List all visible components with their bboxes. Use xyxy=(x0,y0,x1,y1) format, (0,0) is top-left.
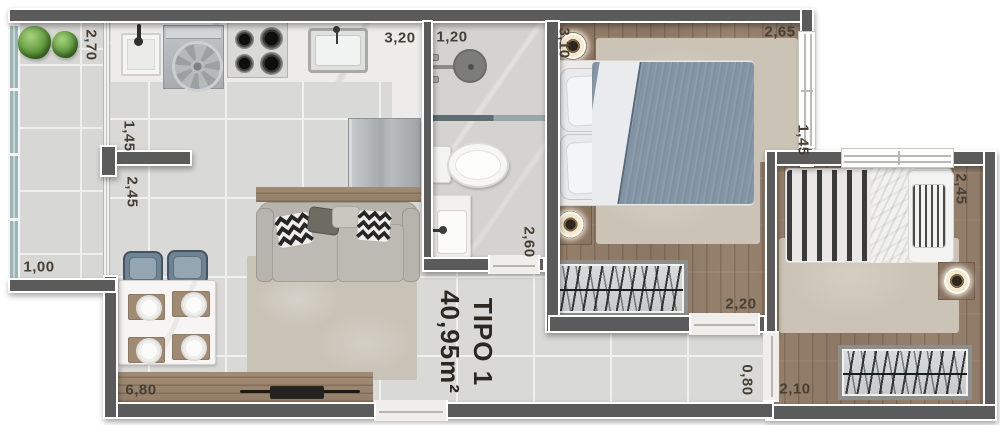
dim-hall-door: 0,80 xyxy=(740,364,755,395)
dim-balcony-width: 1,00 xyxy=(23,260,54,275)
entry-door-opening xyxy=(374,400,448,421)
dim-kitchen-length: 3,20 xyxy=(384,31,415,46)
floor-plan: 2,70 1,45 2,45 1,00 6,80 3,20 1,20 2,60 … xyxy=(0,0,1000,425)
dim-bath-length: 2,60 xyxy=(522,226,537,257)
bedroom2-door-opening xyxy=(763,331,779,402)
dim-partition-upper: 1,45 xyxy=(122,120,137,151)
wall-segment xyxy=(115,150,192,166)
dim-bedroom1-window: 1,45 xyxy=(796,124,811,155)
plan-title: TIPO 1 40,95m² xyxy=(433,290,499,394)
bedroom1-door-opening xyxy=(689,313,760,335)
dim-bedroom2-length: 2,45 xyxy=(954,173,969,204)
wall-segment xyxy=(545,20,560,333)
dim-living-length: 6,80 xyxy=(125,383,156,398)
dim-wardrobe2: 2,10 xyxy=(779,382,810,397)
window-mullion xyxy=(898,151,900,165)
wall-segment xyxy=(422,20,433,272)
door-leaf xyxy=(493,265,535,267)
door-leaf xyxy=(694,324,755,326)
door-leaf xyxy=(379,411,443,413)
wall-segment xyxy=(8,8,814,23)
bathroom-door-opening xyxy=(488,255,540,274)
plan-title-line1: TIPO 1 xyxy=(466,290,499,394)
dim-balcony-length: 2,70 xyxy=(84,29,99,60)
window-mullion xyxy=(801,90,813,92)
dim-partition-lower: 2,45 xyxy=(125,176,140,207)
wall-segment xyxy=(983,150,997,421)
dim-bedroom1-length: 3,10 xyxy=(557,27,572,58)
door-leaf xyxy=(771,336,773,397)
wall-segment xyxy=(765,404,997,421)
dim-bedroom1-width: 2,65 xyxy=(764,25,795,40)
dim-wardrobe1: 2,20 xyxy=(725,297,756,312)
wall-segment xyxy=(8,278,117,293)
dim-bath-width: 1,20 xyxy=(436,30,467,45)
wall-segment xyxy=(765,150,777,333)
walls-layer xyxy=(0,0,1000,425)
plan-title-line2: 40,95m² xyxy=(433,290,466,394)
wall-segment xyxy=(103,275,118,419)
bedroom2-window xyxy=(841,148,954,168)
